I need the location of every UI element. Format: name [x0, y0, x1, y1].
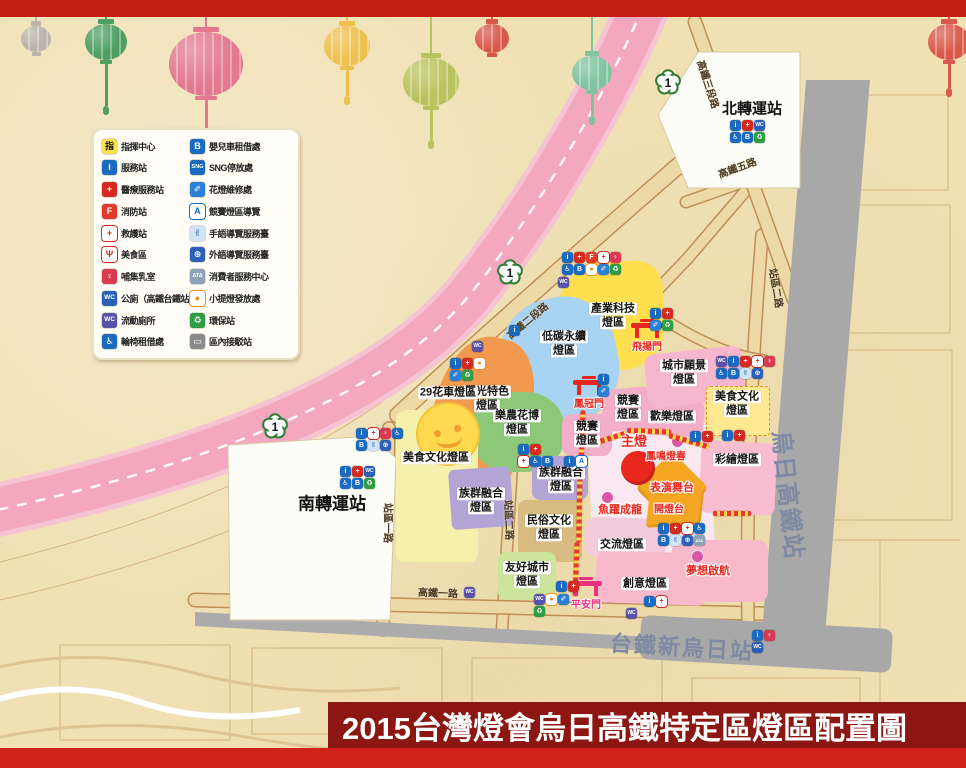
legend-left-column: 指指揮中心i服務站+醫療服務站F消防站+救護站Ψ美食區♀哺集乳室WC公廁（高鐵台…	[102, 136, 190, 352]
stroller-rental-icon-glyph: B	[194, 142, 201, 151]
legend-item-label: 救護站	[121, 227, 147, 240]
recycling-station-icon-glyph: ♻	[193, 316, 201, 325]
legend-item: F消防站	[102, 201, 190, 221]
stroller-rental-icon: B	[190, 139, 205, 154]
legend-item-label: 競賽燈區導覽	[209, 205, 260, 218]
legend-item-label: 流動廁所	[121, 314, 155, 327]
legend-item: i服務站	[102, 158, 190, 178]
command-center-icon: 指	[102, 139, 117, 154]
legend-item: Ψ美食區	[102, 245, 190, 265]
service-station-icon-glyph: i	[108, 163, 111, 172]
public-toilet-icon-glyph: WC	[104, 295, 115, 302]
portable-toilet-icon: WC	[102, 313, 117, 328]
food-area-icon-glyph: Ψ	[106, 250, 113, 259]
fire-station-icon-glyph: F	[107, 207, 113, 216]
first-aid-icon-glyph: +	[107, 229, 112, 238]
title-banner: 2015台灣燈會烏日高鐵特定區燈區配置圖	[328, 702, 966, 748]
sng-parking-icon-glyph: SNG	[192, 165, 204, 171]
first-aid-icon: +	[102, 226, 117, 241]
wheelchair-rental-icon-glyph: ♿	[105, 337, 113, 346]
legend-item: ♻環保站	[190, 310, 294, 330]
legend-item-label: 花燈維修處	[209, 183, 252, 196]
legend-item-label: 輪椅租借處	[121, 335, 164, 348]
legend-item-label: 消防站	[121, 205, 147, 218]
legend-item: +醫療服務站	[102, 180, 190, 200]
bottom-red-bar	[0, 748, 966, 768]
legend-item: 指指揮中心	[102, 136, 190, 156]
fire-station-icon: F	[102, 204, 117, 219]
legend-item: WC公廁（高鐵台鐵站內）	[102, 288, 190, 308]
portable-toilet-icon-glyph: WC	[104, 317, 115, 324]
legend-item-label: 美食區	[121, 248, 147, 261]
poster-title: 2015台灣燈會烏日高鐵特定區燈區配置圖	[328, 703, 907, 748]
lighting-platform-shape	[646, 490, 704, 528]
smiley-face-decoration	[416, 402, 480, 466]
legend-item-label: 嬰兒車租借處	[209, 140, 260, 153]
contest-zone-guide-icon: A	[190, 204, 205, 219]
contest-zone-guide-icon-glyph: A	[194, 207, 201, 216]
service-station-icon: i	[102, 160, 117, 175]
legend-item-label: 手語導覽服務臺	[209, 227, 269, 240]
legend-right-column: B嬰兒車租借處SNGSNG停放處✐花燈維修處A競賽燈區導覽✌手語導覽服務臺⊕外語…	[190, 136, 294, 352]
sng-parking-icon: SNG	[190, 160, 205, 175]
map-legend: 指指揮中心i服務站+醫療服務站F消防站+救護站Ψ美食區♀哺集乳室WC公廁（高鐵台…	[92, 128, 300, 360]
lantern-repair-icon: ✐	[190, 182, 205, 197]
lantern-repair-icon-glyph: ✐	[194, 185, 202, 194]
legend-item: WC流動廁所	[102, 310, 190, 330]
foreign-language-guide-icon-glyph: ⊕	[194, 250, 202, 259]
legend-item-label: 醫療服務站	[121, 183, 164, 196]
legend-item: ♿輪椅租借處	[102, 332, 190, 352]
consumer-service-icon-glyph: ΔΤΔ	[192, 274, 202, 280]
legend-item-label: 外語導覽服務臺	[209, 248, 269, 261]
legend-item: ✌手語導覽服務臺	[190, 223, 294, 243]
nursing-room-icon-glyph: ♀	[106, 272, 113, 281]
shuttle-station-icon: ▭	[190, 334, 205, 349]
medical-service-icon-glyph: +	[107, 185, 112, 194]
legend-item: ΔΤΔ消費者服務中心	[190, 267, 294, 287]
foreign-language-guide-icon: ⊕	[190, 247, 205, 262]
command-center-icon-glyph: 指	[105, 142, 114, 151]
sign-language-guide-icon: ✌	[190, 226, 205, 241]
legend-item: B嬰兒車租借處	[190, 136, 294, 156]
small-lantern-distribution-icon: ●	[190, 291, 205, 306]
legend-item: ⊕外語導覽服務臺	[190, 245, 294, 265]
shuttle-station-icon-glyph: ▭	[193, 337, 202, 346]
legend-item: ●小提燈發放處	[190, 288, 294, 308]
legend-item: ▭區內接駁站	[190, 332, 294, 352]
top-red-bar	[0, 0, 966, 17]
legend-item-label: 消費者服務中心	[209, 270, 269, 283]
legend-item: A競賽燈區導覽	[190, 201, 294, 221]
map-base-graphics	[0, 0, 966, 768]
legend-item-label: 區內接駁站	[209, 335, 252, 348]
wheelchair-rental-icon: ♿	[102, 334, 117, 349]
sign-language-guide-icon-glyph: ✌	[194, 229, 202, 238]
north-transfer-station-area	[658, 52, 800, 188]
public-toilet-icon: WC	[102, 291, 117, 306]
legend-item: +救護站	[102, 223, 190, 243]
south-transfer-station-area	[228, 436, 396, 620]
lantern-festival-map-poster: 指指揮中心i服務站+醫療服務站F消防站+救護站Ψ美食區♀哺集乳室WC公廁（高鐵台…	[0, 0, 966, 768]
legend-item-label: 環保站	[209, 314, 235, 327]
consumer-service-icon: ΔΤΔ	[190, 269, 205, 284]
legend-item: ✐花燈維修處	[190, 180, 294, 200]
main-lantern-marker	[621, 451, 655, 485]
recycling-station-icon: ♻	[190, 313, 205, 328]
legend-item-label: SNG停放處	[209, 161, 253, 174]
legend-item: SNGSNG停放處	[190, 158, 294, 178]
medical-service-icon: +	[102, 182, 117, 197]
legend-item-label: 小提燈發放處	[209, 292, 260, 305]
legend-item-label: 服務站	[121, 161, 147, 174]
small-lantern-distribution-icon-glyph: ●	[195, 294, 200, 303]
legend-item-label: 指揮中心	[121, 140, 155, 153]
nursing-room-icon: ♀	[102, 269, 117, 284]
food-area-icon: Ψ	[102, 247, 117, 262]
legend-item: ♀哺集乳室	[102, 267, 190, 287]
legend-item-label: 哺集乳室	[121, 270, 155, 283]
